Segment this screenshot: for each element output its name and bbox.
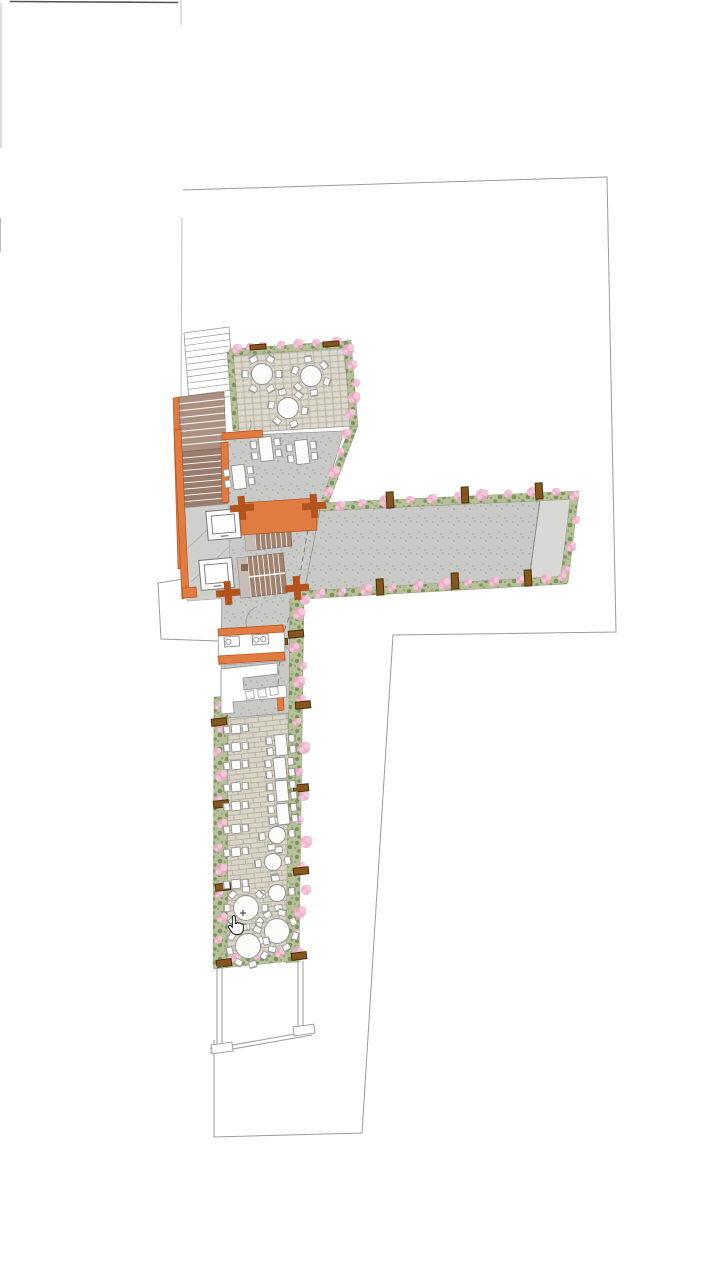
chair <box>289 734 296 742</box>
chair <box>224 480 231 488</box>
chair-back <box>272 875 279 876</box>
flower-bloom <box>294 613 299 618</box>
table-top <box>301 366 322 387</box>
chair <box>266 771 273 779</box>
table-top <box>294 439 310 464</box>
chair <box>304 356 312 363</box>
flower-cluster <box>342 344 355 356</box>
chair <box>275 847 283 854</box>
chair <box>242 824 249 832</box>
chair-back <box>223 785 224 792</box>
chair <box>242 801 249 809</box>
flower-bloom <box>439 583 444 588</box>
elevator-car <box>211 514 235 534</box>
table-top <box>273 757 287 779</box>
pergola-post <box>323 341 339 347</box>
table-top <box>231 760 241 770</box>
sink-counter <box>224 636 240 647</box>
pergola-post <box>535 483 543 499</box>
chair-back <box>266 771 267 778</box>
flower-bloom <box>295 911 300 916</box>
chair <box>286 444 293 452</box>
flower-bloom <box>490 582 495 587</box>
chair <box>268 844 276 851</box>
flower-bloom <box>336 452 340 456</box>
chair-back <box>286 445 287 452</box>
lower-pergola-frame <box>210 961 315 1054</box>
flower-bloom <box>520 576 525 581</box>
chair <box>310 389 318 396</box>
chair <box>242 370 248 377</box>
chair-back <box>316 441 317 448</box>
flower-cluster <box>298 742 311 754</box>
flower-bloom <box>299 768 304 773</box>
table-top <box>269 827 286 844</box>
chair <box>223 826 230 834</box>
flower-bloom <box>410 496 415 501</box>
chair <box>292 814 299 822</box>
chair <box>288 757 295 765</box>
pergola-post <box>461 487 469 503</box>
chair <box>276 370 282 377</box>
flower-bloom <box>528 492 533 497</box>
chair <box>285 857 292 865</box>
flower-bloom <box>214 848 218 852</box>
chair-back <box>253 466 254 473</box>
chair-back <box>248 782 249 789</box>
flower-bloom <box>215 706 219 710</box>
flower-bloom <box>352 360 358 366</box>
flower-bloom <box>220 770 227 777</box>
flower-bloom <box>566 566 571 571</box>
chair <box>269 817 276 825</box>
flower-bloom <box>294 681 299 686</box>
floor-plan-page <box>0 0 720 1280</box>
pergola-post <box>451 573 459 589</box>
chair-back <box>248 824 249 831</box>
flower-bloom <box>216 869 221 874</box>
flower-cluster <box>348 392 361 404</box>
flower-bloom <box>468 579 473 584</box>
pergola-post <box>211 718 227 727</box>
chair-back <box>317 452 318 459</box>
flower-bloom <box>546 574 552 580</box>
flower-bloom <box>218 936 223 941</box>
chair-back <box>293 757 294 764</box>
chair <box>268 806 275 814</box>
chair-back <box>287 456 288 463</box>
chair <box>251 452 258 460</box>
flower-cluster <box>300 595 311 605</box>
chair-back <box>296 745 297 752</box>
flower-bloom <box>353 392 360 399</box>
flower-bloom <box>316 594 321 599</box>
flower-bloom <box>362 499 367 504</box>
table-top <box>231 742 241 752</box>
elevator-door <box>221 536 229 537</box>
pergola-post <box>295 701 311 710</box>
edge-artifact-line <box>181 218 182 397</box>
chair-back <box>267 783 268 790</box>
chair-back <box>268 844 275 845</box>
pergola-post <box>291 952 307 961</box>
flower-bloom <box>556 488 561 493</box>
bar-stool <box>270 687 279 696</box>
chair <box>242 724 249 732</box>
flower-bloom <box>237 344 243 350</box>
chair <box>301 407 308 415</box>
flower-bloom <box>542 579 547 584</box>
flower-bloom <box>443 578 450 585</box>
chair-back <box>275 853 282 854</box>
orange-wall <box>182 587 197 598</box>
chair <box>242 742 249 750</box>
flower-bloom <box>347 344 354 351</box>
chair <box>223 744 230 752</box>
flower-bloom <box>304 791 310 797</box>
flower-bloom <box>218 824 223 829</box>
flower-bloom <box>571 542 577 548</box>
flower-bloom <box>352 383 356 387</box>
table-top <box>265 854 282 871</box>
pergola-post <box>250 344 266 350</box>
flower-bloom <box>303 662 308 667</box>
flower-bloom <box>342 588 347 593</box>
chair <box>266 737 273 745</box>
chair-back <box>248 760 249 767</box>
chair <box>275 449 282 457</box>
table-top <box>258 436 274 461</box>
elevator <box>206 509 241 541</box>
table-top <box>231 824 241 834</box>
flower-bloom <box>290 648 295 653</box>
chair-back <box>248 724 249 731</box>
chair <box>242 760 249 768</box>
flower-bloom <box>516 580 520 584</box>
flower-bloom <box>358 503 362 507</box>
chair-back <box>248 879 249 886</box>
table-top <box>275 780 289 802</box>
flower-bloom <box>392 584 397 589</box>
chair-back <box>295 888 296 895</box>
chair <box>248 477 255 485</box>
chair-back <box>280 438 281 445</box>
flower-bloom <box>299 906 306 913</box>
flower-bloom <box>306 885 312 891</box>
flower-bloom <box>406 500 410 504</box>
chair-back <box>223 827 224 834</box>
table-top <box>231 847 241 857</box>
flower-cluster <box>566 542 577 552</box>
flower-bloom <box>214 940 218 944</box>
flower-bloom <box>218 728 223 733</box>
table-top <box>278 398 299 419</box>
flower-bloom <box>338 592 342 596</box>
flower-bloom <box>567 547 572 552</box>
flower-bloom <box>574 491 580 497</box>
flower-bloom <box>213 752 217 756</box>
flower-cluster <box>299 791 310 801</box>
flower-bloom <box>299 666 303 670</box>
flower-bloom <box>346 414 351 419</box>
flower-bloom <box>340 448 345 453</box>
flower-bloom <box>356 379 361 384</box>
chair <box>274 438 281 446</box>
flower-bloom <box>572 520 576 524</box>
flower-bloom <box>365 584 372 591</box>
chair-back <box>291 857 292 864</box>
flower-cluster <box>294 906 307 918</box>
chair <box>289 830 296 838</box>
chair <box>267 783 274 791</box>
chair <box>223 849 230 857</box>
chair-back <box>268 806 269 813</box>
sink-unit <box>224 636 240 647</box>
chair <box>242 879 249 887</box>
flower-bloom <box>558 577 562 581</box>
chair <box>289 768 296 776</box>
flower-cluster <box>347 360 358 370</box>
chair-back <box>223 804 224 811</box>
flower-bloom <box>570 496 575 501</box>
pergola-post <box>524 570 532 586</box>
chair-back <box>281 449 282 456</box>
flower-bloom <box>297 718 302 723</box>
chair-back <box>295 780 296 787</box>
chair <box>247 466 254 474</box>
flower-bloom <box>218 918 223 923</box>
flower-bloom <box>328 487 334 493</box>
chair-back <box>296 803 297 810</box>
table-top <box>274 734 288 756</box>
chair <box>265 760 272 768</box>
outline-stairs <box>184 327 234 402</box>
flower-bloom <box>215 894 219 898</box>
flower-bloom <box>380 500 385 505</box>
flower-bloom <box>300 796 305 801</box>
flower-bloom <box>432 494 438 500</box>
flower-bloom <box>428 499 433 504</box>
flower-bloom <box>293 722 297 726</box>
chair <box>224 904 230 911</box>
flower-cluster <box>301 885 312 895</box>
edge-artifact-line <box>10 2 178 3</box>
chair <box>311 452 318 460</box>
flower-bloom <box>348 365 353 370</box>
table-top <box>231 879 241 889</box>
flower-bloom <box>562 573 567 578</box>
table-top <box>252 364 273 385</box>
flower-cluster <box>300 836 313 848</box>
elevator-door <box>214 586 222 587</box>
chair-back <box>250 442 251 449</box>
chair <box>310 441 317 449</box>
flower-bloom <box>349 397 354 402</box>
chair <box>287 455 294 463</box>
flower-bloom <box>277 345 281 349</box>
flower-cluster <box>572 516 580 524</box>
chair-back <box>266 737 267 744</box>
chair <box>272 875 280 882</box>
flower-bloom <box>301 695 307 701</box>
chair-back <box>248 847 249 854</box>
chair <box>259 833 266 841</box>
pergola-plate <box>293 1024 315 1036</box>
flower-bloom <box>298 608 305 615</box>
flower-cluster <box>299 662 307 670</box>
flower-bloom <box>299 747 304 752</box>
chair <box>268 794 275 802</box>
flower-bloom <box>222 819 228 825</box>
chair <box>223 881 230 889</box>
flower-bloom <box>320 589 326 595</box>
chair-back <box>298 814 299 821</box>
pergola-post <box>216 959 232 968</box>
sink-unit <box>252 634 269 645</box>
flower-bloom <box>329 471 334 476</box>
stair-dark-block <box>241 564 248 571</box>
flower-bloom <box>343 349 348 354</box>
flower-bloom <box>301 600 306 605</box>
chair-back <box>267 748 268 755</box>
flower-bloom <box>562 570 566 574</box>
flower-bloom <box>246 347 250 351</box>
flower-cluster <box>352 379 360 387</box>
flower-bloom <box>388 588 392 592</box>
chair-back <box>295 830 296 837</box>
flower-bloom <box>342 434 347 439</box>
chair <box>291 803 298 811</box>
table-top <box>269 885 286 902</box>
flower-bloom <box>301 862 306 867</box>
flower-bloom <box>305 595 311 601</box>
chair-seat <box>224 904 230 911</box>
flower-bloom <box>281 341 286 346</box>
chair <box>290 780 297 788</box>
flower-bloom <box>233 349 238 354</box>
flower-bloom <box>217 748 222 753</box>
table-top <box>231 724 241 734</box>
flower-bloom <box>298 339 304 345</box>
flower-bloom <box>324 492 329 497</box>
flower-cluster <box>293 676 306 688</box>
flower-bloom <box>494 577 500 583</box>
pergola-post <box>376 579 384 595</box>
flower-bloom <box>294 643 300 649</box>
chair-back <box>295 768 296 775</box>
flower-bloom <box>220 864 227 871</box>
flower-bloom <box>276 953 281 958</box>
flower-bloom <box>222 913 228 919</box>
table-top <box>236 934 261 959</box>
bar-stool <box>246 691 255 700</box>
flower-bloom <box>552 492 556 496</box>
chair-back <box>265 760 266 767</box>
flower-bloom <box>361 589 366 594</box>
flower-cluster <box>295 768 303 776</box>
chair-back <box>259 833 260 840</box>
chair <box>223 726 230 734</box>
flower-bloom <box>312 343 316 347</box>
flower-bloom <box>333 466 340 473</box>
flower-bloom <box>298 676 305 683</box>
chair <box>267 748 274 756</box>
flower-bloom <box>464 583 468 587</box>
chair <box>250 441 257 449</box>
chair-back <box>255 860 256 867</box>
flower-bloom <box>302 890 307 895</box>
chair <box>242 782 249 790</box>
pergola-post <box>293 867 309 876</box>
table-top <box>231 464 247 489</box>
chair <box>223 469 230 477</box>
flower-bloom <box>418 581 424 587</box>
chair-back <box>294 734 295 741</box>
bar-stool <box>258 689 267 698</box>
chair <box>223 803 230 811</box>
flower-bloom <box>336 506 341 511</box>
chair <box>255 860 262 868</box>
flower-bloom <box>294 344 299 349</box>
chair-back <box>223 763 224 770</box>
flower-bloom <box>504 494 508 498</box>
flower-bloom <box>301 841 306 846</box>
chair-back <box>268 794 269 801</box>
flower-bloom <box>340 501 346 507</box>
table-top <box>276 803 290 825</box>
chair <box>289 888 296 896</box>
flower-bloom <box>216 775 221 780</box>
elevator-car <box>204 563 229 584</box>
flower-bloom <box>508 490 513 495</box>
table-top <box>231 782 241 792</box>
chair-back <box>269 817 270 824</box>
chair-back <box>251 453 252 460</box>
flower-bloom <box>481 489 488 496</box>
flower-bloom <box>454 496 458 500</box>
flower-bloom <box>305 836 312 843</box>
chair-back <box>297 791 298 798</box>
table-top <box>234 896 259 921</box>
flower-bloom <box>414 586 419 591</box>
flower-bloom <box>303 742 310 749</box>
chair-back <box>248 742 249 749</box>
edge-artifact-lines <box>1 0 183 397</box>
chair <box>242 847 249 855</box>
chair-back <box>248 801 249 808</box>
chair-back <box>223 727 224 734</box>
flower-bloom <box>316 339 321 344</box>
chair <box>268 401 275 409</box>
chair-seat <box>276 370 282 377</box>
table-top <box>231 801 241 811</box>
chair <box>223 784 230 792</box>
chair-back <box>223 850 224 857</box>
flower-bloom <box>350 409 356 415</box>
flower-bloom <box>346 429 352 435</box>
chair-back <box>223 745 224 752</box>
pergola-post <box>386 492 394 508</box>
chair-back <box>254 477 255 484</box>
flower-bloom <box>218 844 223 849</box>
chair <box>290 745 297 753</box>
chair <box>291 791 298 799</box>
flower-bloom <box>576 516 581 521</box>
chair-back <box>223 470 224 477</box>
flower-bloom <box>299 816 304 821</box>
flower-cluster <box>323 487 334 497</box>
chair-back <box>224 481 225 488</box>
